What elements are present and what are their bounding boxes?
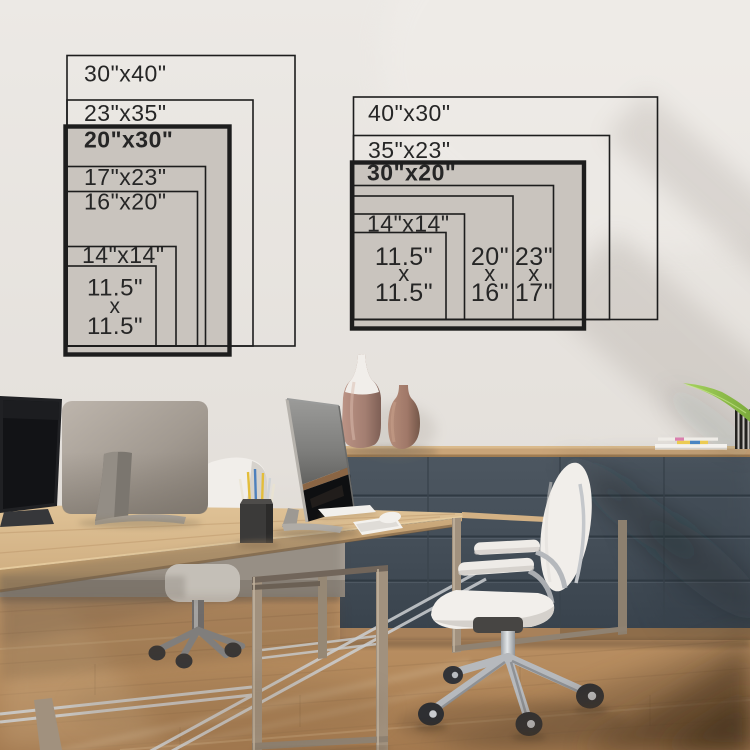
svg-text:30"x40": 30"x40" bbox=[84, 61, 167, 87]
svg-text:17": 17" bbox=[515, 279, 553, 307]
svg-text:40"x30": 40"x30" bbox=[368, 100, 451, 126]
svg-text:14"x14": 14"x14" bbox=[82, 242, 165, 268]
svg-text:23"x35": 23"x35" bbox=[84, 100, 167, 126]
svg-text:20"x30": 20"x30" bbox=[84, 127, 173, 153]
svg-text:17"x23": 17"x23" bbox=[84, 164, 167, 190]
svg-text:14"x14": 14"x14" bbox=[367, 211, 450, 237]
svg-text:16": 16" bbox=[471, 279, 509, 307]
svg-text:16"x20": 16"x20" bbox=[84, 189, 167, 215]
svg-text:30"x20": 30"x20" bbox=[367, 160, 456, 186]
svg-text:11.5": 11.5" bbox=[375, 279, 433, 307]
svg-text:11.5": 11.5" bbox=[87, 313, 143, 340]
